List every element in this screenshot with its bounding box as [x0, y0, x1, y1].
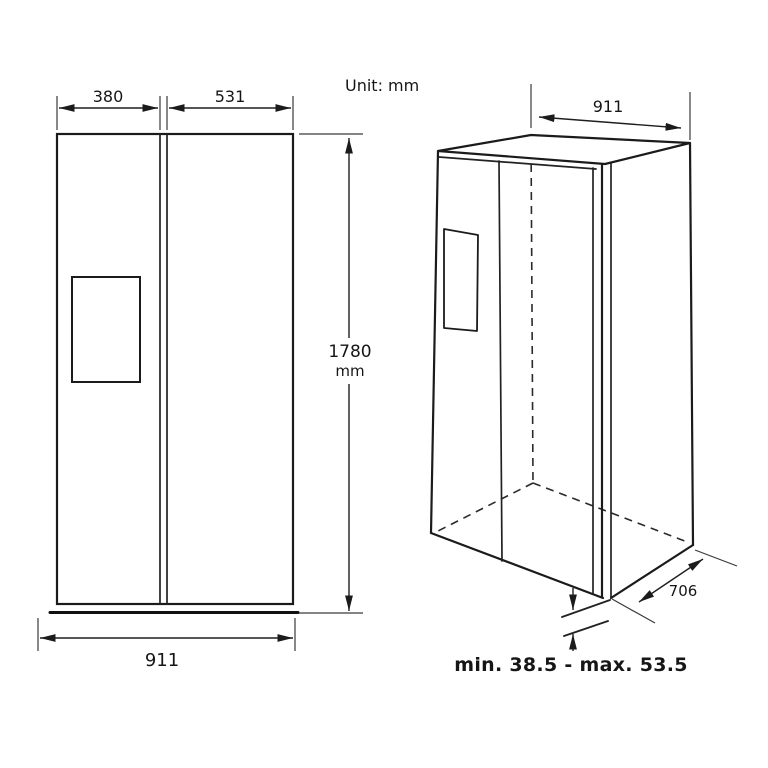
front-view: 380 531 1780 mm [38, 87, 372, 671]
dim-feet-height-range: min. 38.5 - max. 53.5 [454, 588, 688, 676]
perspective-dispenser-panel [444, 229, 478, 331]
perspective-overall-width-label: 911 [593, 97, 624, 116]
perspective-hidden-edges [438, 136, 690, 543]
perspective-door-gap-line [499, 161, 502, 561]
feet-height-range-label: min. 38.5 - max. 53.5 [454, 654, 688, 676]
perspective-depth-label: 706 [669, 582, 698, 600]
front-right-door-width-label: 531 [215, 87, 246, 106]
perspective-side-face [611, 143, 693, 598]
perspective-view: 911 706 min. 38.5 - max. 53.5 [431, 84, 737, 676]
appliance-dimension-diagram: 380 531 1780 mm [0, 0, 768, 768]
perspective-front-face [431, 151, 611, 598]
front-cabinet-outline [57, 134, 293, 604]
dim-front-height: 1780 mm [299, 134, 372, 613]
dim-front-left-door-width: 380 [57, 87, 160, 130]
dim-front-right-door-width: 531 [167, 87, 293, 130]
front-left-door-width-label: 380 [93, 87, 124, 106]
front-height-label: 1780 [328, 342, 371, 362]
dim-perspective-overall-width: 911 [531, 84, 690, 140]
dimension-diagram-svg: 380 531 1780 mm [0, 0, 768, 768]
front-dispenser-panel [72, 277, 140, 382]
unit-note: Unit: mm [345, 76, 419, 95]
front-height-unit-label: mm [335, 362, 364, 380]
dim-front-overall-width: 911 [38, 618, 295, 671]
front-overall-width-label: 911 [145, 650, 179, 671]
